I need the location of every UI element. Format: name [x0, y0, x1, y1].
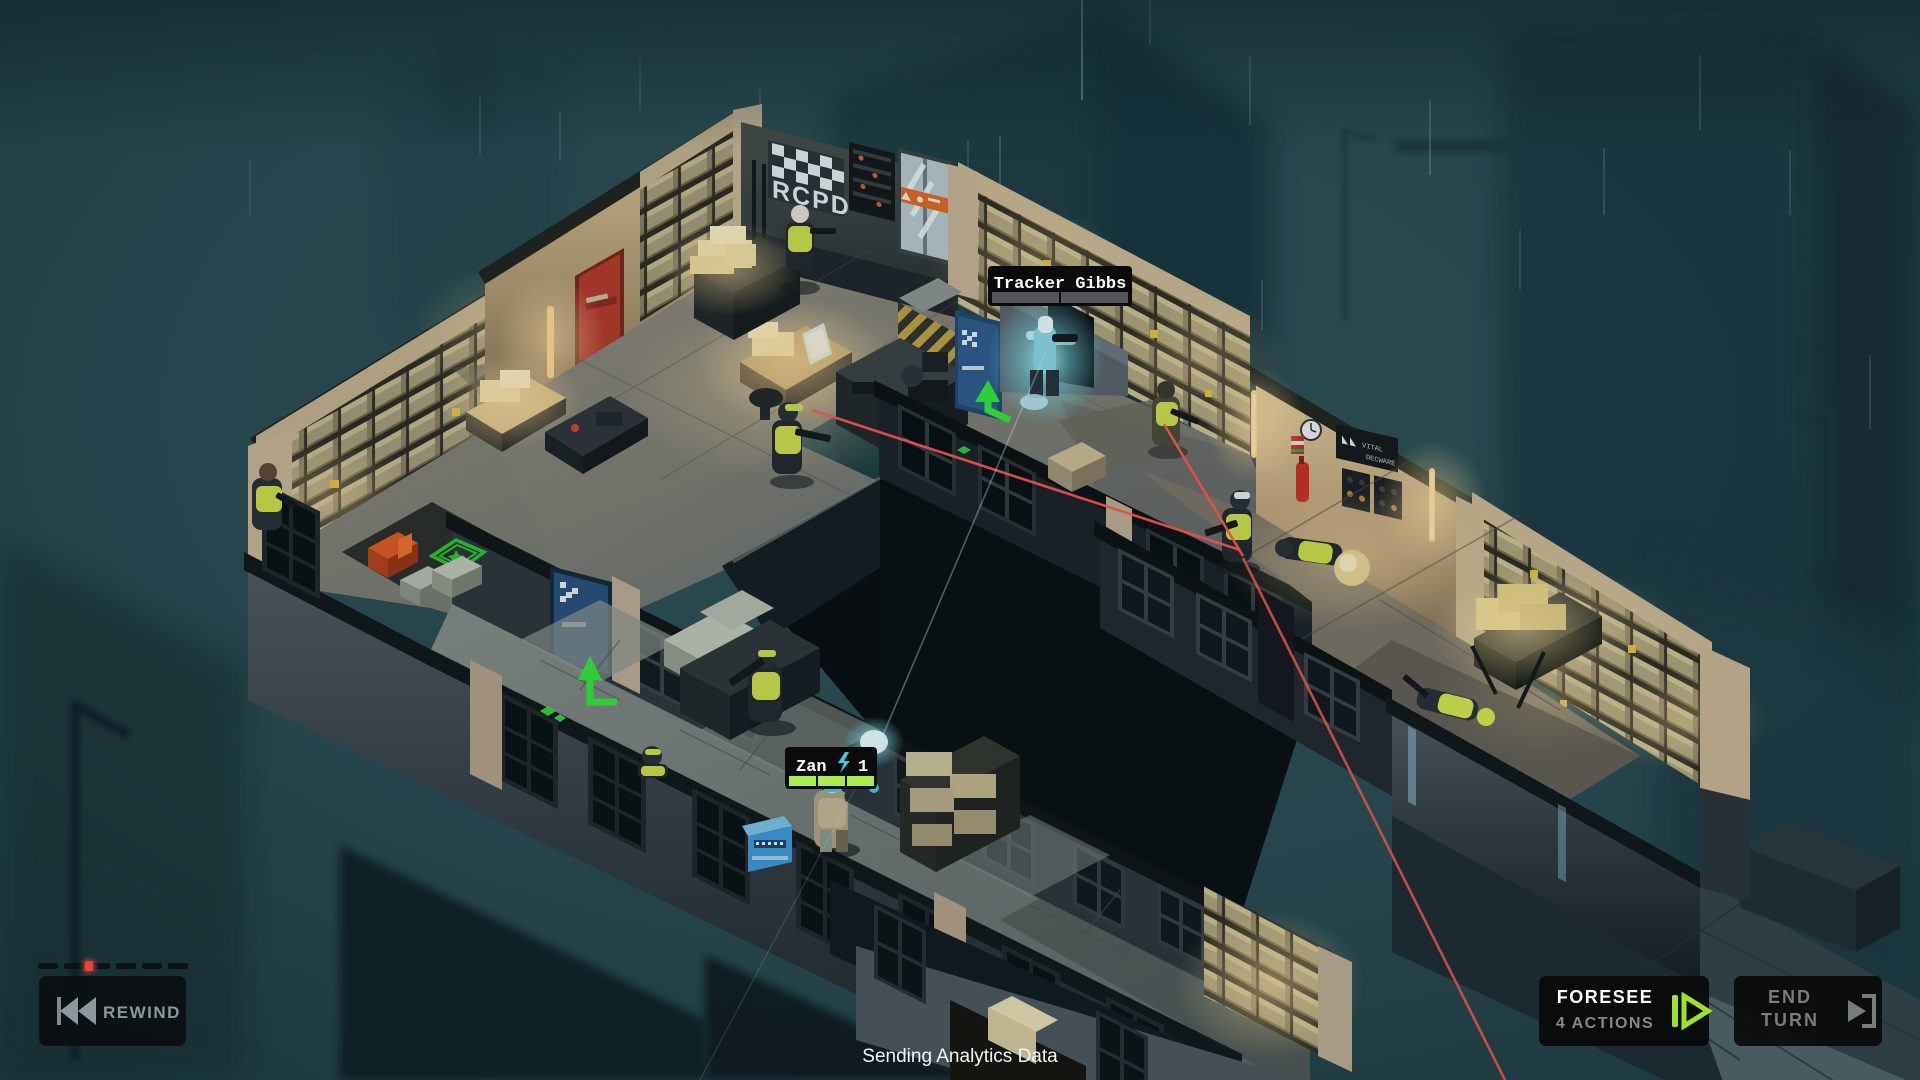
- svg-text:REWIND: REWIND: [103, 1003, 181, 1022]
- svg-text:END: END: [1768, 987, 1812, 1007]
- svg-text:1: 1: [858, 758, 868, 777]
- svg-text:Sending Analytics Data: Sending Analytics Data: [862, 1046, 1058, 1067]
- svg-text:Zan: Zan: [796, 758, 827, 777]
- svg-text:TURN: TURN: [1761, 1010, 1819, 1030]
- svg-text:Tracker Gibbs: Tracker Gibbs: [994, 275, 1127, 294]
- svg-text:4 ACTIONS: 4 ACTIONS: [1556, 1015, 1654, 1032]
- svg-text:FORESEE: FORESEE: [1557, 987, 1654, 1007]
